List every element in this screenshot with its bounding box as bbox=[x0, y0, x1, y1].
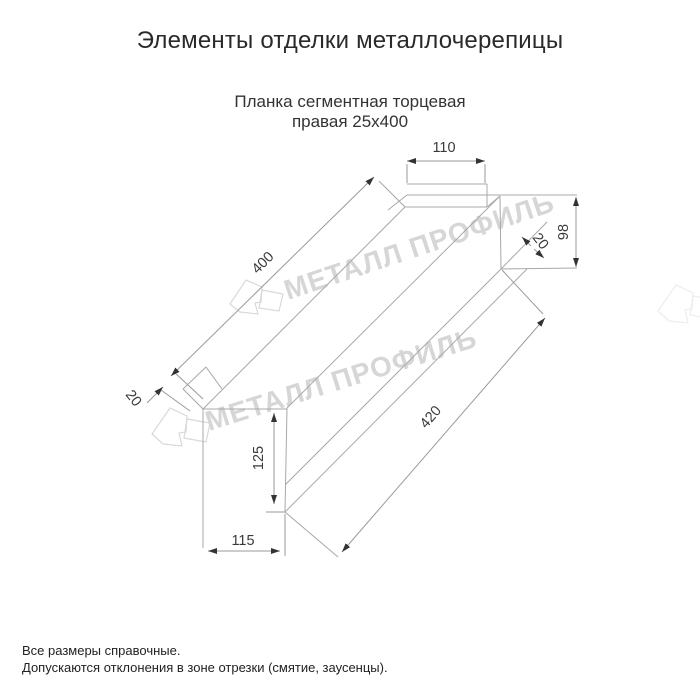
dimension-115: 115 bbox=[208, 533, 280, 551]
dimension-20-left: 20 bbox=[122, 387, 163, 410]
dim-label-20-top: 20 bbox=[529, 230, 552, 253]
dim-label-115: 115 bbox=[231, 533, 254, 549]
dim-label-98: 98 bbox=[556, 224, 572, 240]
footnote-line-1: Все размеры справочные. bbox=[22, 642, 388, 659]
technical-drawing: МЕТАЛЛ ПРОФИЛЬ МЕТАЛЛ ПРОФИЛЬ bbox=[0, 0, 700, 700]
dim-label-110: 110 bbox=[432, 140, 455, 156]
dimension-98: 98 bbox=[556, 197, 576, 267]
dim-label-20-left: 20 bbox=[122, 387, 145, 410]
dimension-125: 125 bbox=[251, 413, 274, 504]
watermark-logo-2 bbox=[152, 408, 210, 446]
footnote-line-2: Допускаются отклонения в зоне отрезки (с… bbox=[22, 659, 388, 676]
dimension-20-top: 20 bbox=[522, 230, 551, 258]
dim-label-125: 125 bbox=[251, 446, 267, 470]
dimension-110: 110 bbox=[407, 140, 485, 161]
dim-label-400: 400 bbox=[249, 249, 277, 277]
drawing-page: Элементы отделки металлочерепицы Планка … bbox=[0, 0, 700, 700]
watermark-text-1: МЕТАЛЛ ПРОФИЛЬ bbox=[280, 186, 558, 305]
watermark-logo-1 bbox=[230, 280, 283, 314]
watermark-logo-3 bbox=[658, 285, 700, 323]
footnotes: Все размеры справочные. Допускаются откл… bbox=[22, 642, 388, 676]
dim-label-420: 420 bbox=[417, 403, 445, 432]
